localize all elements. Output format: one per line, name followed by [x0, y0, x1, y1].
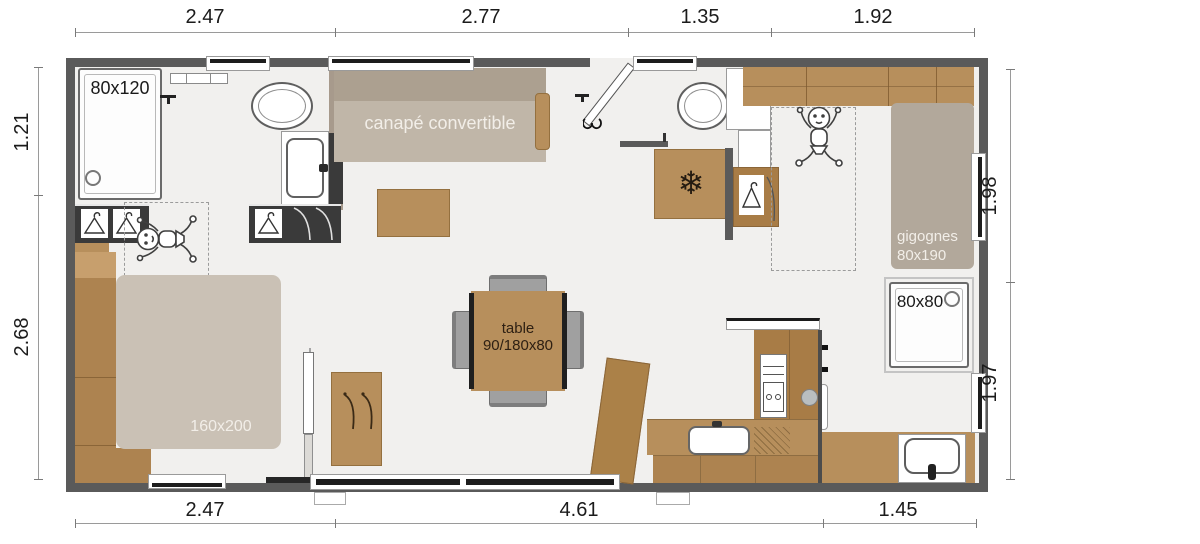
- entry-step: [314, 492, 346, 505]
- towel-rail-bar: [186, 73, 187, 84]
- oven-knob: [766, 394, 772, 400]
- dim-tick: [34, 195, 43, 196]
- dim-tick: [75, 519, 76, 528]
- oven-rack-line: [763, 366, 784, 367]
- kitchen-unit-divider: [789, 330, 790, 422]
- dim-tick: [1006, 69, 1015, 70]
- small-hob-icon: [801, 389, 818, 406]
- partition-hall-bedroom2: [725, 148, 733, 240]
- nesting-label-line2: 80x190: [897, 247, 946, 264]
- dim-tick: [823, 519, 824, 528]
- dim-tick: [771, 28, 772, 37]
- kitchen-sink-icon: [688, 426, 750, 455]
- dim-bottom-2: 4.61: [539, 499, 619, 521]
- headboard-divider: [75, 445, 116, 446]
- dim-tick: [335, 28, 336, 37]
- bay-glazing-panel: [466, 479, 614, 485]
- window-glazing: [332, 59, 470, 63]
- dim-line-right: [1010, 69, 1011, 480]
- door-stop-icon: [663, 133, 666, 142]
- towel-rail-icon: [170, 73, 228, 84]
- dim-line-bottom: [75, 523, 977, 524]
- window-glazing: [152, 483, 222, 487]
- wall-hook-icon: [581, 94, 584, 102]
- shower-small-label: 80x80: [891, 292, 949, 312]
- kitchen-base-cabinets: [653, 455, 818, 483]
- shower-drain-icon: [85, 170, 101, 186]
- cabinet-divider: [700, 455, 701, 483]
- kitchen-bar-top: [726, 318, 820, 330]
- door-handle-icon: [583, 115, 603, 131]
- shelf-unit: [738, 130, 771, 169]
- dim-tick: [974, 28, 975, 37]
- dim-tick: [75, 28, 76, 37]
- headboard-divider: [75, 377, 116, 378]
- dim-top-1: 2.47: [165, 6, 245, 28]
- dim-line-top: [75, 32, 975, 33]
- chair: [564, 311, 584, 369]
- door-swing-icon: [288, 206, 338, 242]
- shower-large-label: 80x120: [84, 78, 156, 99]
- hanger-hooks-icon: [336, 390, 378, 436]
- hanger-icon: [255, 209, 282, 238]
- table-label: table 90/180x80: [471, 320, 565, 354]
- bed-headboard-shelf: [75, 252, 116, 278]
- sliding-door-leaf: [303, 352, 314, 434]
- dim-right-2: 1.97: [979, 361, 1001, 405]
- sofa-label: canapé convertible: [334, 113, 546, 134]
- toilet-bowl: [258, 89, 306, 123]
- hanger-icon: [81, 209, 108, 238]
- window-glazing: [637, 59, 693, 63]
- towel-rail-bar: [210, 73, 211, 84]
- dim-top-4: 1.92: [833, 6, 913, 28]
- nesting-beds-label: gigognes 80x190: [895, 227, 974, 265]
- dim-tick: [34, 479, 43, 480]
- wall-dark-panel: [266, 477, 310, 483]
- faucet-icon: [928, 464, 936, 480]
- oven-rack-line: [763, 374, 784, 375]
- baby-icon: [786, 104, 852, 170]
- dim-bottom-1: 2.47: [165, 499, 245, 521]
- dim-right-1: 1.98: [979, 174, 1001, 218]
- coffee-table: [377, 189, 450, 237]
- dim-line-left: [38, 67, 39, 480]
- wc-wall-stub: [620, 141, 668, 147]
- cabinet-divider: [755, 455, 756, 483]
- table-label-line1: table: [502, 320, 535, 337]
- kitchen-faucet-icon: [712, 421, 722, 427]
- table-label-line2: 90/180x80: [483, 337, 553, 354]
- toilet-bowl: [684, 89, 722, 123]
- drainboard-icon: [754, 427, 790, 454]
- dim-left-2: 2.68: [11, 315, 33, 359]
- dim-left-1: 1.21: [11, 110, 33, 154]
- window-glazing: [210, 59, 266, 63]
- wall-hook-icon: [167, 95, 170, 104]
- dim-bottom-3: 1.45: [858, 499, 938, 521]
- baby-icon: [134, 206, 200, 272]
- kitchen-side-panel: [818, 330, 822, 483]
- entry-step: [656, 492, 690, 505]
- dim-tick: [1006, 282, 1015, 283]
- dim-top-2: 2.77: [441, 6, 521, 28]
- sofa-back: [334, 68, 546, 101]
- floor-plan: 80x120 160x200: [0, 0, 1200, 544]
- bay-glazing-panel: [316, 479, 460, 485]
- wardrobe-divider: [743, 86, 974, 87]
- dim-top-3: 1.35: [660, 6, 740, 28]
- nesting-label-line1: gigognes: [897, 228, 958, 245]
- washbasin-faucet-icon: [319, 164, 328, 172]
- bed-foot-bench: [75, 448, 151, 483]
- dim-tick: [628, 28, 629, 37]
- dim-tick: [1006, 479, 1015, 480]
- double-bed-label: 160x200: [165, 418, 277, 436]
- snowflake-icon: ❄: [671, 165, 711, 201]
- oven-knob: [775, 394, 781, 400]
- dim-tick: [335, 519, 336, 528]
- hanger-icon: [739, 175, 764, 215]
- dim-tick: [34, 67, 43, 68]
- dim-tick: [976, 519, 977, 528]
